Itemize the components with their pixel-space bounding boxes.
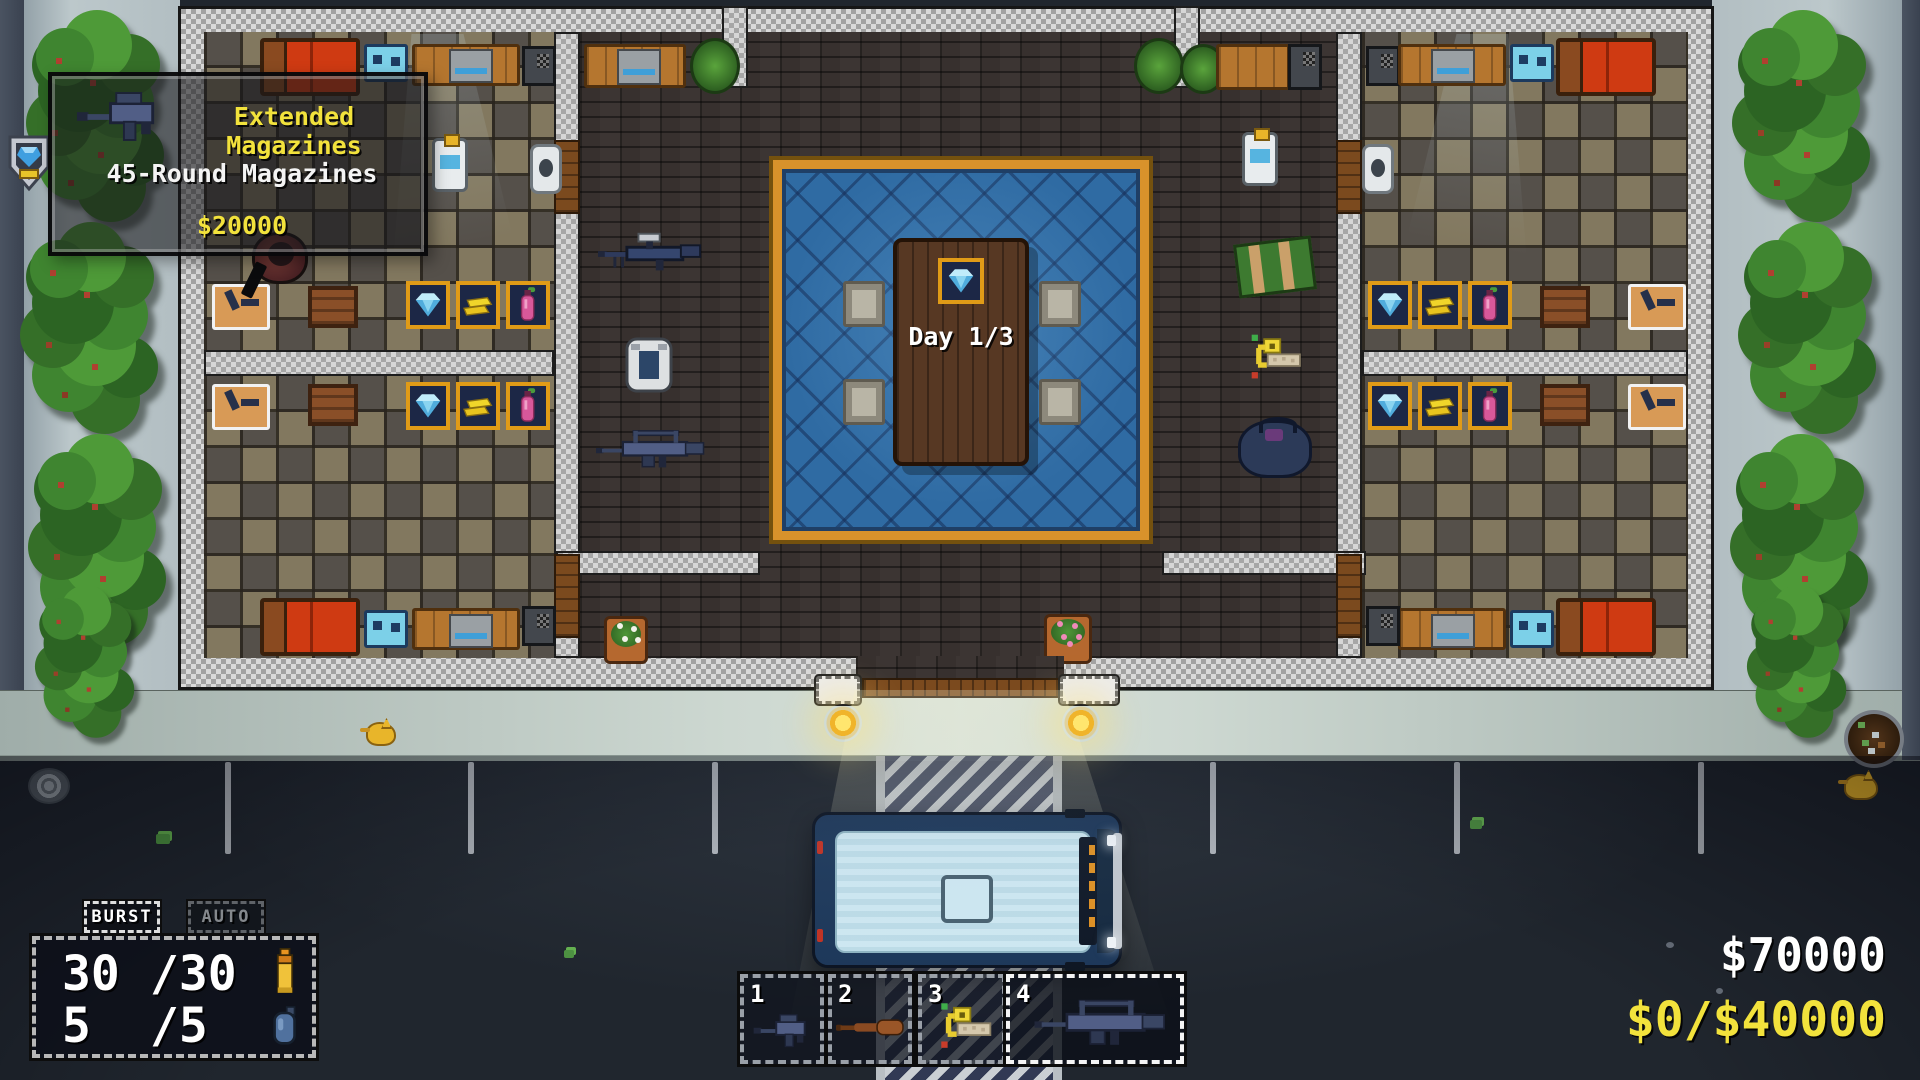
gold-bars-icon — [462, 292, 494, 318]
tree — [1748, 240, 1806, 298]
bottle-icon — [1480, 287, 1500, 323]
map-edge-marker — [6, 134, 52, 192]
baseball-bat-icon — [836, 1016, 906, 1038]
sidewalk-right — [1712, 0, 1904, 690]
day-counter: Day 1/3 — [890, 322, 1032, 352]
hotbar-slot-1[interactable]: 1 — [740, 974, 824, 1064]
potted-plant — [690, 38, 740, 94]
reserve-max: /5 — [150, 1002, 208, 1050]
parking-line — [468, 762, 474, 854]
shop-frame-diamond[interactable] — [406, 281, 450, 329]
room-door[interactable] — [1336, 140, 1362, 214]
shop-frame-bottle[interactable] — [1468, 382, 1512, 430]
objective-marker[interactable] — [938, 258, 984, 304]
van-headlight — [1107, 835, 1116, 846]
bed — [1556, 38, 1656, 96]
counter — [1216, 44, 1290, 90]
shop-frame-gold[interactable] — [456, 281, 500, 329]
shop-frame-gold[interactable] — [1418, 382, 1462, 430]
dresser — [412, 44, 520, 86]
tree — [1742, 28, 1800, 86]
dresser — [1398, 608, 1506, 650]
shop-frame-bottle[interactable] — [506, 281, 550, 329]
debris-leaf — [1470, 820, 1482, 829]
interior-wall — [1362, 350, 1688, 376]
tooltip-subtitle: 45-Round Magazines — [62, 159, 422, 188]
shop-frame-diamond[interactable] — [1368, 382, 1412, 430]
sink-unit — [449, 614, 493, 648]
bottle-icon — [518, 287, 538, 323]
breaching-charge-item[interactable] — [1244, 332, 1304, 380]
diamond-icon — [1375, 292, 1405, 319]
potted-plant — [1134, 38, 1184, 94]
hotbar-slot-number: 1 — [750, 980, 764, 1008]
reserve-count: 5 — [36, 1002, 150, 1050]
van-bumper — [1113, 833, 1122, 949]
manhole-cover — [28, 768, 70, 804]
trash-planter — [1844, 710, 1904, 768]
weapon-display-mat[interactable] — [212, 384, 270, 430]
duffel-bag[interactable] — [1238, 420, 1312, 478]
van-mirror — [1065, 809, 1085, 818]
lamp-glow — [1062, 704, 1100, 742]
water-cooler — [432, 138, 468, 192]
van-taillight — [817, 929, 823, 942]
tree — [1754, 598, 1796, 640]
cash-register[interactable] — [1288, 44, 1322, 90]
sink-unit — [1431, 614, 1475, 648]
parking-line — [712, 762, 718, 854]
wooden-crate — [1540, 384, 1590, 426]
sink-unit — [1431, 49, 1475, 83]
safe[interactable] — [522, 606, 556, 646]
hotbar-slot-number: 4 — [1016, 980, 1030, 1008]
money-objective: $0/$40000 — [1420, 992, 1886, 1048]
van-headlight — [1107, 937, 1116, 948]
debris-leaf — [156, 834, 170, 844]
tree — [42, 598, 84, 640]
game-viewport: Day 1/3 — [0, 0, 1920, 1080]
getaway-van[interactable] — [812, 812, 1122, 968]
screen-edge-left — [0, 0, 24, 690]
smg-extended-magazine-icon — [76, 90, 168, 144]
gold-bars-icon — [1424, 393, 1456, 419]
van-windshield — [1079, 837, 1097, 945]
lamp-glow — [824, 704, 862, 742]
fire-mode-burst[interactable]: BURST — [84, 901, 160, 933]
tooltip-price: $20000 — [62, 211, 422, 240]
weapon-display-mat[interactable] — [1628, 384, 1686, 430]
wooden-crate — [308, 384, 358, 426]
cooler-box — [364, 610, 408, 648]
cat[interactable] — [1844, 774, 1878, 800]
coffee-machine — [617, 49, 661, 85]
interior-wall — [556, 551, 760, 575]
breaching-charge-icon — [934, 1000, 994, 1052]
parking-line — [1698, 762, 1704, 854]
armor-vest-icon — [622, 336, 676, 394]
bottle-icon — [1480, 388, 1500, 424]
chair — [843, 281, 885, 327]
sniper-rifle-icon — [598, 230, 704, 278]
van-mirror — [1065, 962, 1085, 971]
cat[interactable] — [366, 722, 396, 746]
water-cooler — [1242, 132, 1278, 186]
shop-frame-gold[interactable] — [1418, 281, 1462, 329]
room-door[interactable] — [1336, 554, 1362, 638]
chair — [843, 379, 885, 425]
hotbar-slot-number: 2 — [838, 980, 852, 1008]
magazine-count: 30 — [36, 950, 150, 998]
diamond-icon — [1375, 393, 1405, 420]
tree — [1740, 452, 1798, 510]
shop-frame-diamond[interactable] — [406, 382, 450, 430]
shop-frame-gold[interactable] — [456, 382, 500, 430]
armor-vest-item[interactable] — [622, 336, 676, 394]
breaching-charge-icon — [1244, 332, 1304, 382]
hotbar-slot-4[interactable]: 4 — [1006, 974, 1184, 1064]
entrance-lamp-fixture — [1060, 676, 1118, 704]
cat[interactable] — [1792, 710, 1824, 734]
parking-line — [1210, 762, 1216, 854]
interior-wall — [204, 350, 554, 376]
money-balance: $70000 — [1450, 928, 1886, 982]
bed — [1556, 598, 1656, 656]
sink-unit — [449, 49, 493, 83]
toilet — [1362, 144, 1394, 194]
sniper-rifle-item[interactable] — [598, 230, 704, 278]
diamond-icon — [413, 393, 443, 420]
safe[interactable] — [1366, 606, 1400, 646]
chair — [1039, 281, 1081, 327]
wooden-crate — [1540, 286, 1590, 328]
toilet — [530, 144, 562, 194]
shield-gem-icon — [6, 134, 52, 192]
diamond-icon — [413, 292, 443, 319]
cooler-box — [1510, 610, 1554, 648]
safe[interactable] — [522, 46, 556, 86]
assault-rifle-icon — [596, 426, 708, 476]
shop-frame-bottle[interactable] — [506, 382, 550, 430]
tooltip-title: Extended Magazines — [164, 102, 424, 160]
screen-edge-right — [1902, 0, 1920, 760]
rifle-round-icon — [272, 948, 298, 1000]
item-tooltip: Extended Magazines 45-Round Magazines $2… — [48, 72, 428, 256]
dresser — [1398, 44, 1506, 86]
magazine-max: /30 — [150, 950, 237, 998]
ammo-crate[interactable] — [1233, 235, 1317, 298]
chair — [1039, 379, 1081, 425]
cooler-box — [1510, 44, 1554, 82]
parking-line — [225, 762, 231, 854]
bottle-icon — [518, 388, 538, 424]
counter — [584, 44, 686, 88]
safe[interactable] — [1366, 46, 1400, 86]
wooden-crate — [308, 286, 358, 328]
hotbar-slot-3[interactable]: 3 — [918, 974, 1006, 1064]
gold-bars-icon — [462, 393, 494, 419]
debris-leaf — [564, 950, 574, 958]
diamond-icon — [946, 268, 976, 295]
parking-line — [1454, 762, 1460, 854]
weapon-display-mat[interactable] — [1628, 284, 1686, 330]
bed — [260, 598, 360, 656]
shop-frame-bottle[interactable] — [1468, 281, 1512, 329]
van-taillight — [817, 841, 823, 854]
hotbar-slot-2[interactable]: 2 — [828, 974, 912, 1064]
assault-rifle-item[interactable] — [596, 426, 708, 484]
gold-bars-icon — [1424, 292, 1456, 318]
fire-mode-auto[interactable]: AUTO — [188, 901, 264, 933]
grenade-icon — [272, 1006, 298, 1046]
battle-rifle-icon — [1034, 998, 1170, 1052]
shop-frame-diamond[interactable] — [1368, 281, 1412, 329]
tree — [38, 452, 96, 510]
dresser — [412, 608, 520, 650]
smg-icon — [753, 1012, 815, 1050]
ammo-panel: 30 /30 5 /5 — [32, 936, 316, 1058]
van-sunroof — [941, 875, 993, 923]
room-door[interactable] — [554, 554, 580, 638]
flower-pot — [604, 616, 648, 664]
